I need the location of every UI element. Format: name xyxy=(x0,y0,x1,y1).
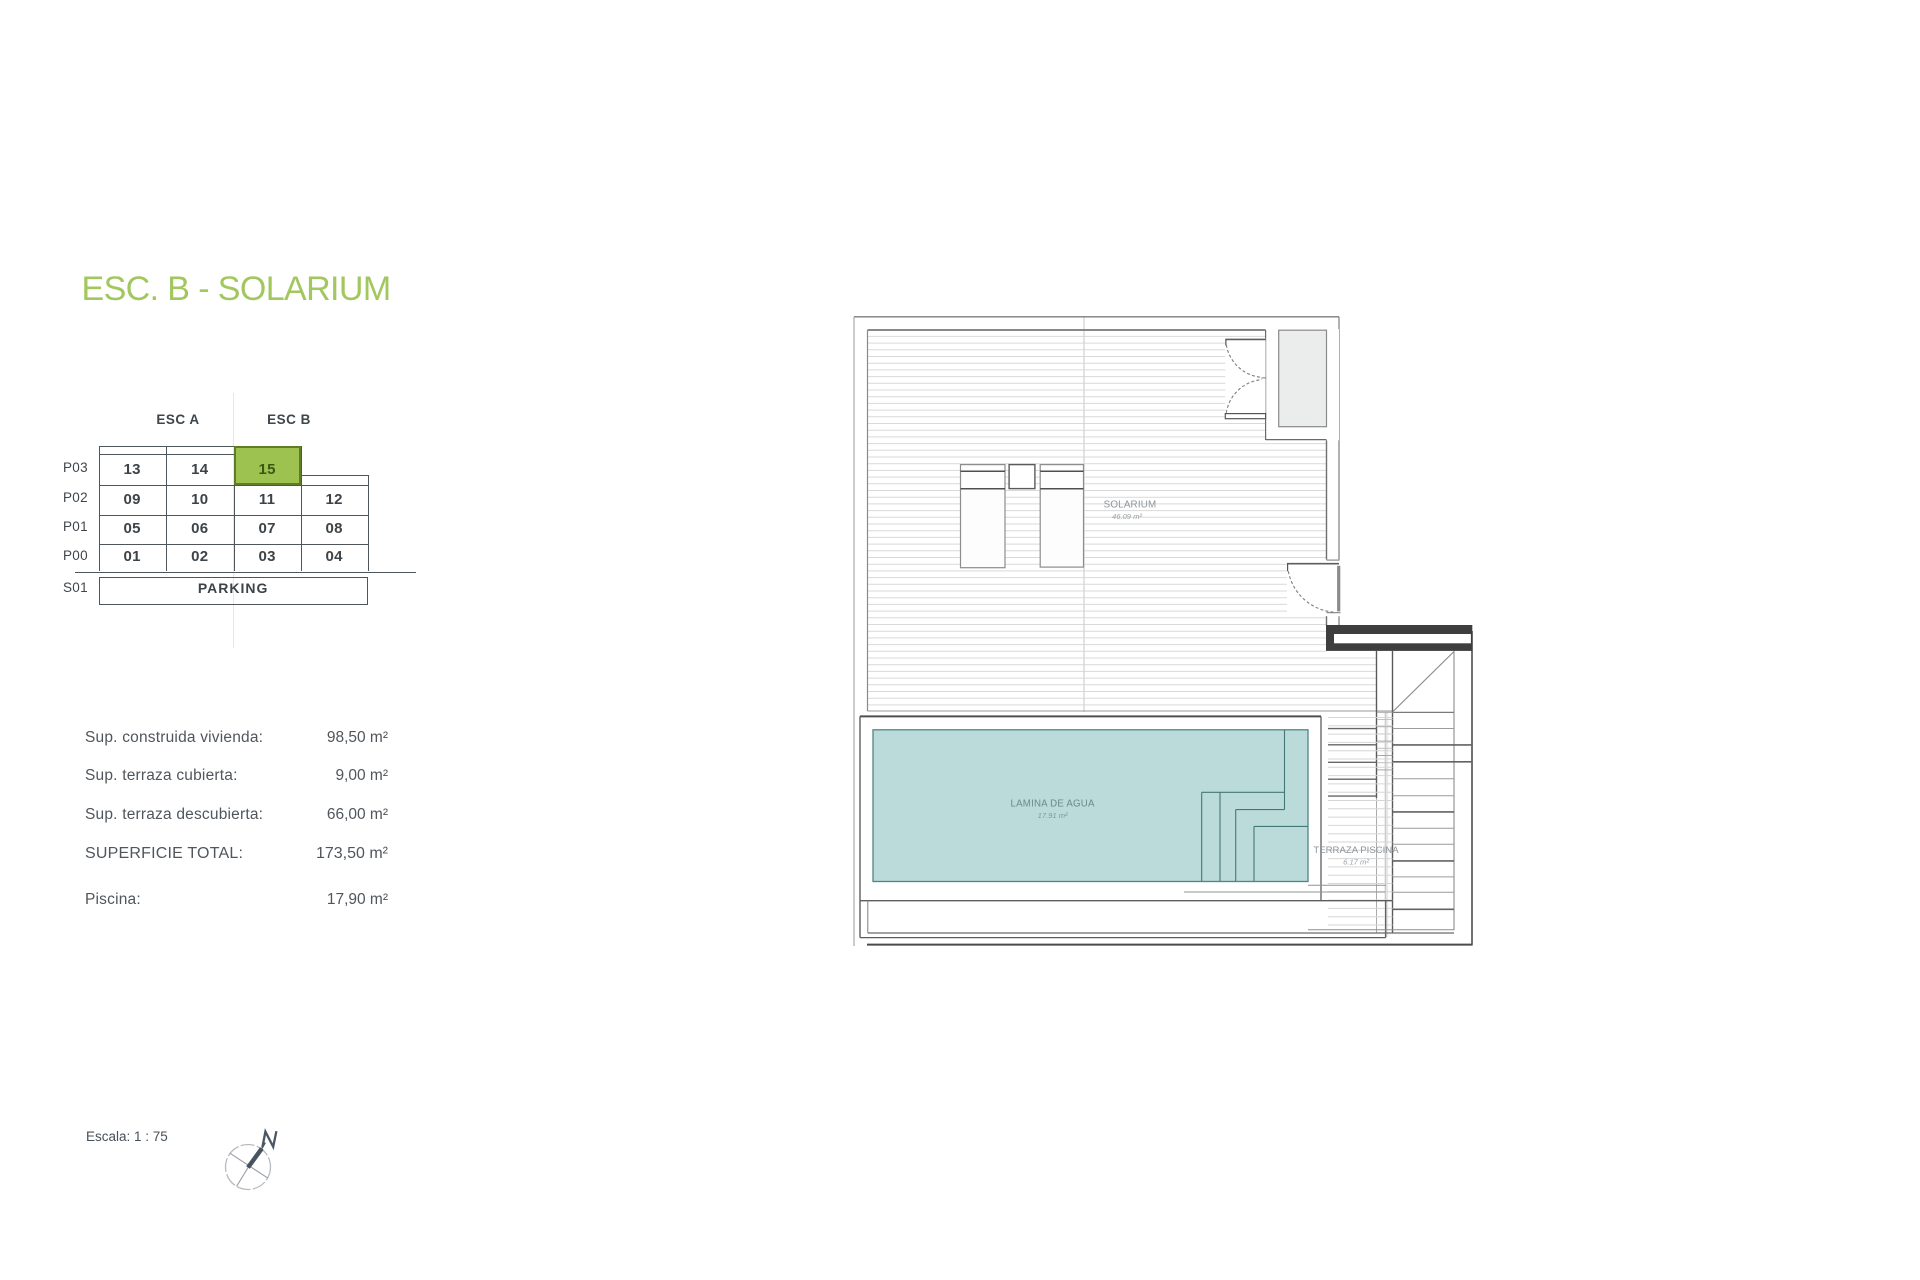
svg-text:LAMINA DE AGUA: LAMINA DE AGUA xyxy=(1011,799,1095,810)
svg-text:TERRAZA PISCINA: TERRAZA PISCINA xyxy=(1313,845,1399,856)
svg-text:SOLARIUM: SOLARIUM xyxy=(1104,500,1157,511)
svg-text:6.17 m²: 6.17 m² xyxy=(1343,858,1369,867)
svg-text:46.09 m²: 46.09 m² xyxy=(1112,512,1142,521)
svg-text:17.91 m²: 17.91 m² xyxy=(1038,811,1068,820)
